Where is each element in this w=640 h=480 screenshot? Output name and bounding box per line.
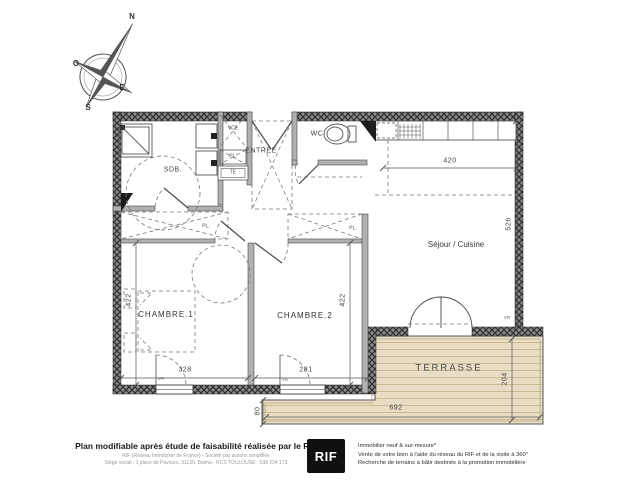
compass-west-label: O — [73, 60, 79, 68]
closet-label-pl-ch2: PL. — [349, 227, 357, 232]
room-label-wc: WC — [311, 131, 324, 138]
footer-services: Immobilier neuf & sur-mesure* Vente de v… — [358, 442, 628, 468]
closet-label-vce: VCE — [228, 127, 238, 132]
dim-terrasse-height: 204 — [502, 372, 509, 385]
room-label-sejour: Séjour / Cuisine — [428, 241, 484, 249]
rif-logo: RIF — [307, 439, 345, 473]
dim-terrasse-side: 80 — [255, 407, 262, 416]
dim-ch1-height: 422 — [126, 293, 133, 306]
footer-title: Plan modifiable après étude de faisabili… — [60, 441, 332, 451]
footer-address-line: Siège social : 1 place de Pavours, 31130… — [60, 460, 332, 466]
dim-sejour-height: 526 — [506, 217, 513, 230]
room-label-entree: ENTRÉE — [245, 148, 276, 155]
room-label-chambre1: CHAMBRE.1 — [138, 311, 194, 319]
dim-terrasse-width: 692 — [389, 405, 402, 412]
shutter-label-sejour: VR — [504, 316, 510, 321]
room-label-terrasse: TERRASSE — [415, 363, 482, 373]
footer-service-line-2: Vente de votre bien à l'aide du réseau d… — [358, 451, 628, 460]
shutter-label-ch1: VR — [158, 377, 164, 382]
dim-ch2-width: 281 — [299, 367, 312, 374]
rif-logo-text: RIF — [315, 449, 337, 464]
floor-plan-page: N O E S SDB. ENTRÉE WC Séjour / Cuisine … — [0, 0, 640, 480]
compass-north-label: N — [129, 13, 135, 21]
dim-ch2-height: 422 — [340, 293, 347, 306]
dim-kitchen-width: 420 — [443, 158, 456, 165]
closet-label-pl-entree: PL. — [229, 155, 237, 160]
closet-label-te: TE — [230, 171, 236, 176]
french-door-terrace — [410, 297, 472, 328]
footer-company-line: RIF (Réseau Immobilier de France) - Soci… — [60, 453, 332, 459]
room-label-chambre2: CHAMBRE.2 — [277, 312, 333, 320]
shutter-label-ch2: VR — [282, 378, 288, 383]
floor-plan-drawing — [0, 0, 640, 480]
footer-service-line-1: Immobilier neuf & sur-mesure* — [358, 442, 628, 451]
footer-service-line-3: Recherche de terrains à bâtir destinés à… — [358, 459, 628, 468]
compass-east-label: E — [119, 84, 124, 92]
compass-south-label: S — [85, 104, 90, 112]
dim-ch1-width: 328 — [178, 367, 191, 374]
closet-label-pl-ch1: PL. — [202, 225, 210, 230]
room-label-sdb: SDB. — [164, 167, 182, 174]
